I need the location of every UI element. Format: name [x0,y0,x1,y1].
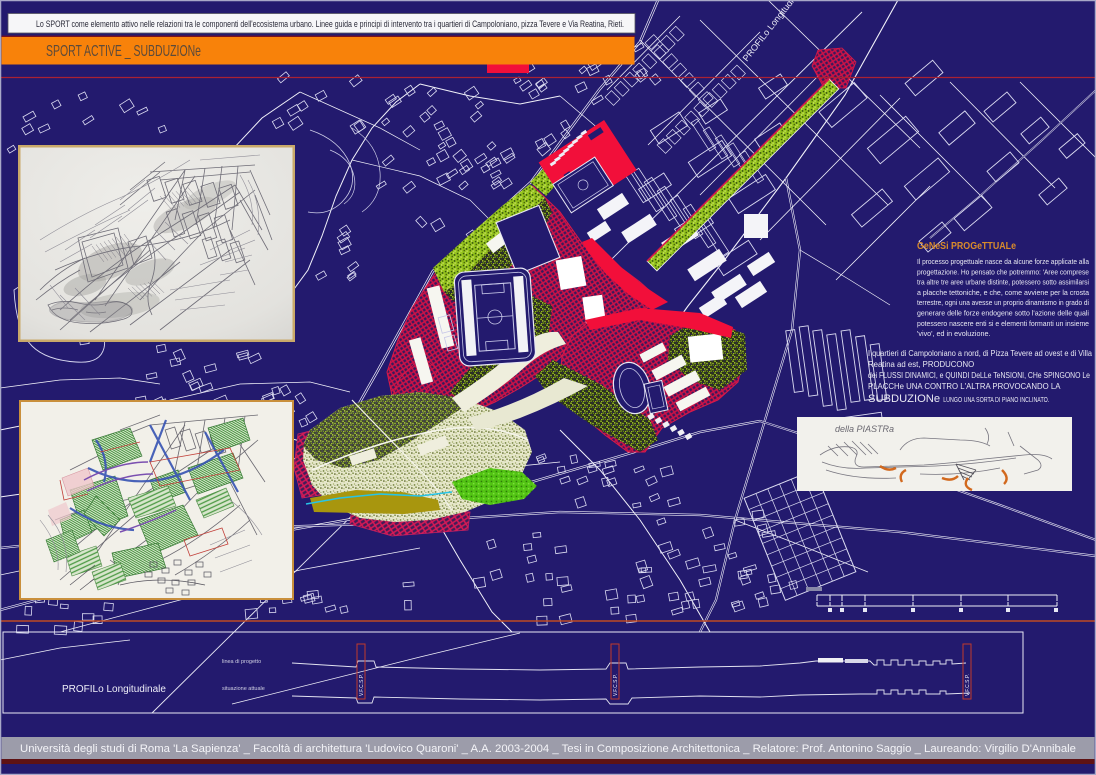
svg-text:Lo SPORT come elemento attivo: Lo SPORT come elemento attivo nelle rela… [36,19,624,30]
svg-text:situazione attuale: situazione attuale [222,686,265,692]
svg-text:GeNeSi PROGeTTUALe: GeNeSi PROGeTTUALe [917,240,1016,252]
svg-text:V.F.C.S.P.: V.F.C.S.P. [359,674,365,696]
svg-text:V.F.C.S.P.: V.F.C.S.P. [965,674,971,696]
svg-text:SUBDUZIONe LUNGO UNA SORTA DI: SUBDUZIONe LUNGO UNA SORTA DI PIANO INCL… [868,393,1049,405]
svg-text:Il processo progettuale nasce: Il processo progettuale nasce da alcune … [917,257,1089,338]
svg-text:della PIASTRa: della PIASTRa [835,424,894,434]
svg-text:linea di progetto: linea di progetto [222,659,261,665]
svg-text:Università degli studi di Roma: Università degli studi di Roma 'La Sapie… [20,743,1076,755]
svg-text:PROFILo Longitudinale: PROFILo Longitudinale [62,684,166,695]
svg-text:V.F.C.S.P.: V.F.C.S.P. [613,674,619,696]
svg-text:SPORT ACTIVE _ SUBDUZIONe: SPORT ACTIVE _ SUBDUZIONe [46,43,201,60]
